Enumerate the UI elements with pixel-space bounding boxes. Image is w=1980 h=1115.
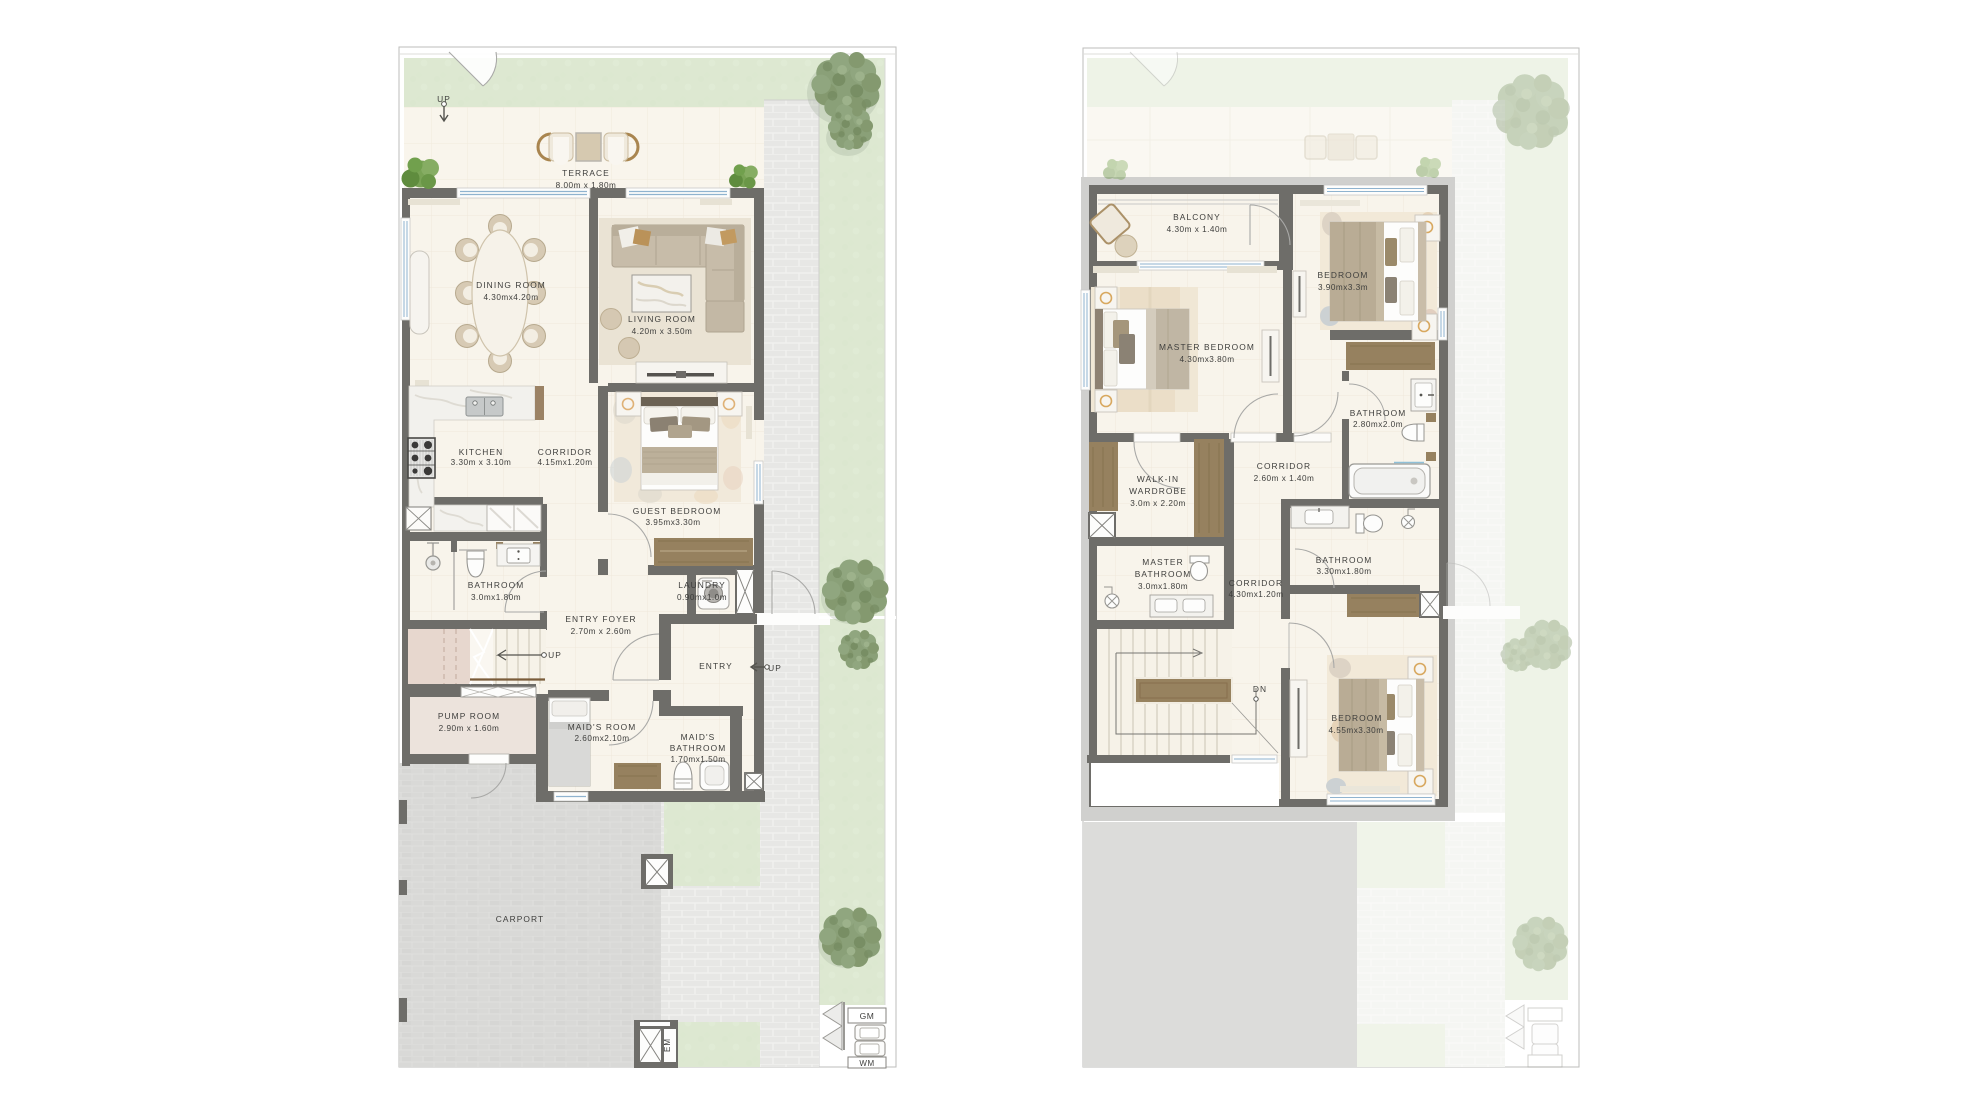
svg-text:MAID'S ROOM: MAID'S ROOM [568,722,637,732]
svg-text:CARPORT: CARPORT [496,914,545,924]
svg-text:4.55mx3.30m: 4.55mx3.30m [1328,726,1383,735]
svg-text:2.90m x 1.60m: 2.90m x 1.60m [439,724,500,733]
svg-text:3.90mx3.3m: 3.90mx3.3m [1318,283,1368,292]
svg-text:UP: UP [548,650,562,660]
svg-text:WALK-IN: WALK-IN [1137,474,1179,484]
svg-text:BATHROOM: BATHROOM [1135,569,1192,579]
svg-text:8.00m x 1.80m: 8.00m x 1.80m [556,181,617,190]
svg-text:4.20m x 3.50m: 4.20m x 3.50m [632,327,693,336]
svg-text:CORRIDOR: CORRIDOR [538,447,592,457]
svg-text:BATHROOM: BATHROOM [1350,408,1407,418]
svg-text:2.60mx2.10m: 2.60mx2.10m [574,734,629,743]
svg-text:DN: DN [1253,684,1267,694]
svg-text:BALCONY: BALCONY [1173,212,1221,222]
svg-text:4.30mx3.80m: 4.30mx3.80m [1179,355,1234,364]
svg-text:BEDROOM: BEDROOM [1318,270,1369,280]
svg-text:PUMP ROOM: PUMP ROOM [438,711,500,721]
svg-text:2.60m x 1.40m: 2.60m x 1.40m [1254,474,1315,483]
svg-text:BATHROOM: BATHROOM [468,580,525,590]
svg-text:1.70mx1.50m: 1.70mx1.50m [670,755,725,764]
svg-text:LAUNDRY: LAUNDRY [678,580,726,590]
svg-text:4.15mx1.20m: 4.15mx1.20m [537,458,592,467]
svg-text:WARDROBE: WARDROBE [1129,486,1187,496]
svg-text:ENTRY: ENTRY [699,661,733,671]
svg-text:UP: UP [437,94,451,104]
svg-text:MAID'S: MAID'S [681,732,716,742]
svg-text:GM: GM [860,1011,875,1021]
svg-text:3.0mx1.80m: 3.0mx1.80m [1138,582,1188,591]
svg-text:3.0mx1.80m: 3.0mx1.80m [471,593,521,602]
svg-text:MASTER: MASTER [1142,557,1184,567]
svg-text:4.30mx4.20m: 4.30mx4.20m [483,293,538,302]
svg-text:GUEST BEDROOM: GUEST BEDROOM [633,506,722,516]
svg-text:LIVING ROOM: LIVING ROOM [628,314,696,324]
svg-text:4.30mx1.20m: 4.30mx1.20m [1228,590,1283,599]
svg-text:WM: WM [859,1059,874,1068]
svg-text:CORRIDOR: CORRIDOR [1229,578,1283,588]
svg-text:TERRACE: TERRACE [562,168,610,178]
svg-text:MASTER BEDROOM: MASTER BEDROOM [1159,342,1255,352]
svg-text:BEDROOM: BEDROOM [1332,713,1383,723]
svg-text:4.30m x 1.40m: 4.30m x 1.40m [1167,225,1228,234]
svg-text:DINING ROOM: DINING ROOM [476,280,546,290]
svg-text:BATHROOM: BATHROOM [670,743,727,753]
svg-text:BATHROOM: BATHROOM [1316,555,1373,565]
svg-text:KITCHEN: KITCHEN [459,447,503,457]
svg-text:EM: EM [663,1038,672,1052]
svg-text:2.80mx2.0m: 2.80mx2.0m [1353,420,1403,429]
svg-text:UP: UP [768,663,782,673]
svg-text:3.95mx3.30m: 3.95mx3.30m [645,518,700,527]
svg-text:3.30m x 3.10m: 3.30m x 3.10m [451,458,512,467]
svg-text:0.90mx1.0m: 0.90mx1.0m [677,593,727,602]
svg-text:2.70m x 2.60m: 2.70m x 2.60m [571,627,632,636]
svg-text:3.30mx1.80m: 3.30mx1.80m [1316,567,1371,576]
svg-text:ENTRY FOYER: ENTRY FOYER [565,614,636,624]
svg-text:3.0m x 2.20m: 3.0m x 2.20m [1130,499,1186,508]
svg-text:CORRIDOR: CORRIDOR [1257,461,1311,471]
